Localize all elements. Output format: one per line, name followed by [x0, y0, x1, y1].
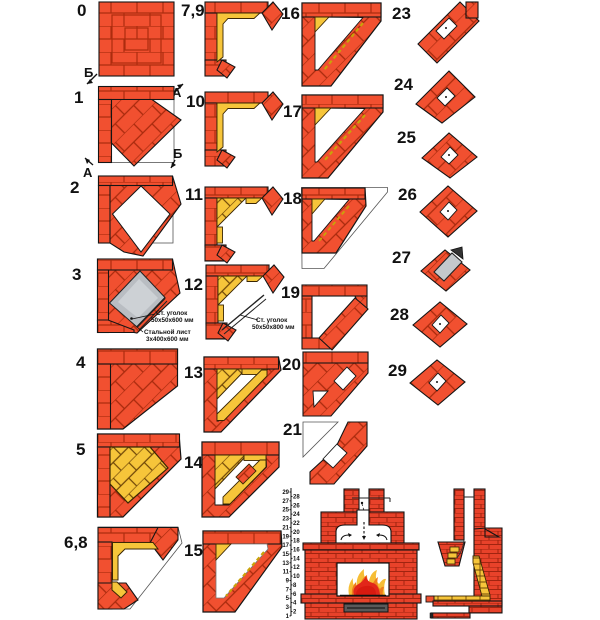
svg-text:12: 12	[293, 565, 300, 571]
svg-text:16: 16	[281, 4, 300, 23]
svg-text:11: 11	[283, 570, 290, 576]
svg-text:10: 10	[293, 574, 300, 580]
svg-text:27: 27	[392, 248, 411, 267]
svg-text:6,8: 6,8	[64, 533, 88, 552]
svg-text:20: 20	[293, 530, 300, 536]
svg-text:15: 15	[184, 541, 203, 560]
svg-text:21: 21	[283, 420, 302, 439]
svg-text:5: 5	[76, 440, 85, 459]
svg-text:29: 29	[282, 490, 289, 496]
svg-text:18: 18	[283, 189, 302, 208]
svg-text:0: 0	[77, 1, 86, 20]
svg-text:24: 24	[293, 512, 300, 518]
svg-text:Б: Б	[173, 146, 182, 161]
svg-text:11: 11	[185, 185, 203, 204]
svg-text:21: 21	[282, 525, 289, 531]
svg-text:Ст. уголок: Ст. уголок	[256, 317, 288, 324]
svg-text:14: 14	[293, 556, 300, 562]
svg-text:17: 17	[283, 102, 302, 121]
svg-text:17: 17	[282, 543, 289, 549]
svg-text:14: 14	[184, 453, 203, 472]
svg-text:2: 2	[70, 178, 79, 197]
svg-text:15: 15	[282, 552, 289, 558]
svg-text:22: 22	[293, 521, 300, 527]
svg-text:25: 25	[282, 508, 289, 514]
svg-text:13: 13	[282, 561, 289, 567]
svg-text:24: 24	[394, 75, 413, 94]
svg-text:18: 18	[293, 539, 300, 545]
svg-text:19: 19	[281, 283, 300, 302]
svg-text:13: 13	[184, 363, 203, 382]
svg-text:28: 28	[293, 494, 300, 500]
svg-text:23: 23	[282, 517, 289, 523]
svg-text:27: 27	[282, 499, 289, 505]
svg-text:1: 1	[74, 88, 83, 107]
svg-text:19: 19	[282, 534, 289, 540]
svg-text:4: 4	[76, 353, 86, 372]
svg-text:7,9: 7,9	[181, 1, 205, 20]
svg-text:Ст. уголок: Ст. уголок	[156, 310, 188, 317]
svg-text:23: 23	[392, 4, 411, 23]
svg-text:20: 20	[282, 355, 301, 374]
svg-text:26: 26	[293, 503, 300, 509]
svg-text:16: 16	[293, 548, 300, 554]
svg-text:12: 12	[184, 275, 203, 294]
svg-text:А: А	[83, 165, 93, 180]
svg-text:10: 10	[186, 92, 205, 111]
svg-text:26: 26	[398, 185, 417, 204]
svg-text:50х50х800 мм: 50х50х800 мм	[252, 324, 295, 331]
svg-text:29: 29	[388, 361, 407, 380]
svg-text:25: 25	[397, 128, 416, 147]
svg-text:Стальной лист: Стальной лист	[144, 328, 191, 336]
svg-text:3х400х600 мм: 3х400х600 мм	[146, 336, 189, 343]
svg-text:28: 28	[390, 305, 409, 324]
svg-text:3: 3	[72, 265, 81, 284]
svg-text:50х50х600 мм: 50х50х600 мм	[151, 317, 194, 324]
svg-text:Б: Б	[84, 65, 93, 80]
